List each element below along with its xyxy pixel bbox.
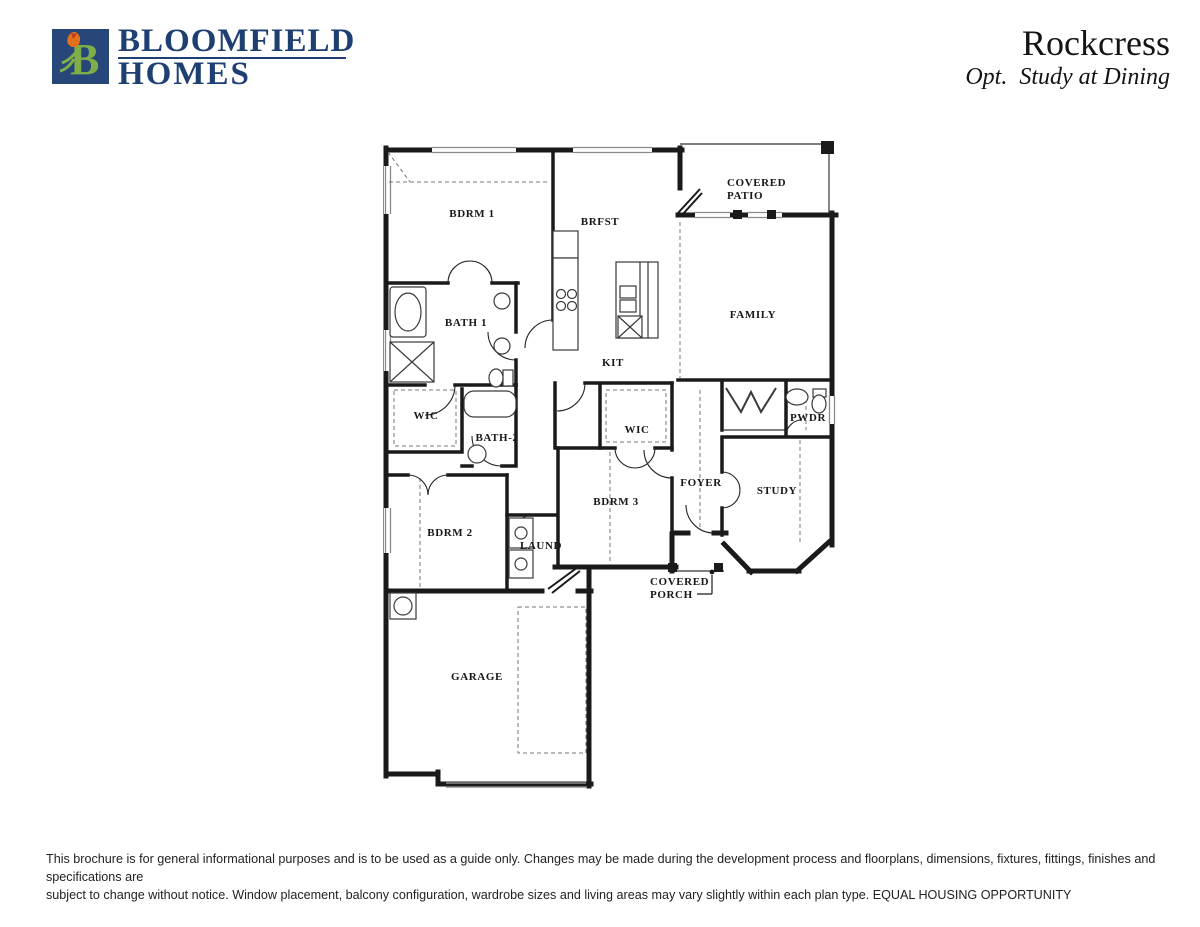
room-label-brfst: BRFST <box>581 216 620 228</box>
room-label-family: FAMILY <box>730 309 776 321</box>
room-label-foyer: FOYER <box>680 477 722 489</box>
fixtures <box>390 231 826 619</box>
plan-option: Opt. Study at Dining <box>965 62 1170 92</box>
plan-titles: Rockcress Opt. Study at Dining <box>965 24 1170 92</box>
floor-plan: BDRM 1 BRFST COVERED PATIO BATH 1 FAMILY… <box>370 128 850 805</box>
brand-text: BLOOMFIELD HOMES <box>118 26 355 90</box>
patio-outline <box>676 144 829 571</box>
floor-plan-svg: BDRM 1 BRFST COVERED PATIO BATH 1 FAMILY… <box>370 128 850 800</box>
room-label-covered-patio-1: COVERED <box>727 177 786 189</box>
bath2-tub <box>464 391 516 417</box>
island-sink <box>620 286 636 298</box>
bath1-sink2 <box>494 338 510 354</box>
bath2-sink <box>468 445 486 463</box>
bloomfield-logo: B <box>52 29 109 84</box>
mud-bench <box>726 388 776 412</box>
disclaimer-line1: This brochure is for general information… <box>46 850 1161 886</box>
room-label-pwdr: PWDR <box>790 412 826 424</box>
room-label-covered-patio-2: PATIO <box>727 190 763 202</box>
room-label-bath2: BATH-2 <box>475 432 518 444</box>
room-label-study: STUDY <box>757 485 797 497</box>
disclaimer-line2: subject to change without notice. Window… <box>46 886 1161 904</box>
room-label-bdrm3: BDRM 3 <box>593 496 638 508</box>
room-label-covered-porch-1: COVERED <box>650 576 709 588</box>
bath1-toilet <box>503 370 513 386</box>
room-label-laund: LAUND <box>520 540 562 552</box>
room-label-wic-bdrm3: WIC <box>624 424 649 436</box>
bloomfield-logo-icon: B <box>52 29 109 84</box>
bath1-sink <box>494 293 510 309</box>
room-label-wic-left: WIC <box>413 410 438 422</box>
kitchen-fridge <box>553 231 578 258</box>
room-label-bdrm2: BDRM 2 <box>427 527 472 539</box>
posts <box>668 141 834 572</box>
room-label-garage: GARAGE <box>451 671 503 683</box>
pwdr-sink <box>786 389 808 405</box>
exterior-walls <box>386 148 836 786</box>
room-label-covered-porch-2: PORCH <box>650 589 693 601</box>
brand-line2: HOMES <box>118 59 355 90</box>
room-label-bdrm1: BDRM 1 <box>449 208 494 220</box>
room-label-kit: KIT <box>602 357 624 369</box>
plan-name: Rockcress <box>965 24 1170 62</box>
brand-line1: BLOOMFIELD <box>118 26 355 56</box>
room-label-bath1: BATH 1 <box>445 317 487 329</box>
disclaimer: This brochure is for general information… <box>46 850 1161 904</box>
